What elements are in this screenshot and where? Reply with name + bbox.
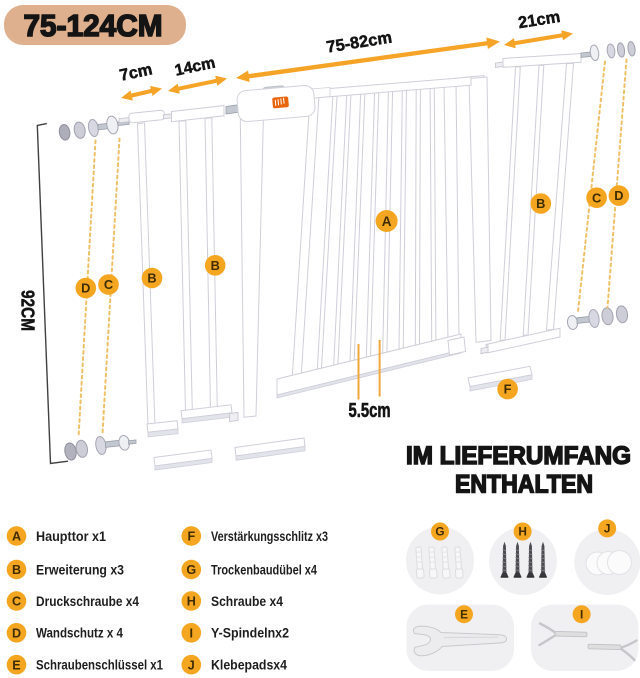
svg-text:A: A [382,214,392,229]
svg-text:ENTHALTEN: ENTHALTEN [455,471,593,499]
svg-text:Trockenbaudübel x4: Trockenbaudübel x4 [211,562,317,577]
svg-text:F: F [504,382,512,397]
svg-text:C: C [592,190,601,205]
svg-text:H: H [187,595,196,609]
svg-text:F: F [187,530,195,544]
svg-text:75-124CM: 75-124CM [24,8,163,43]
svg-text:Schraube x4: Schraube x4 [211,594,283,609]
svg-text:G: G [435,525,444,539]
svg-text:B: B [211,258,220,273]
svg-text:92CM: 92CM [18,290,39,331]
svg-text:Schraubenschlüssel x1: Schraubenschlüssel x1 [36,658,163,673]
svg-text:5.5cm: 5.5cm [349,400,391,422]
svg-text:Haupttor x1: Haupttor x1 [36,529,107,544]
svg-text:Erweiterung x3: Erweiterung x3 [36,562,124,577]
svg-text:J: J [188,658,195,672]
svg-text:C: C [12,595,21,609]
svg-text:J: J [604,522,611,536]
svg-text:Wandschutz x 4: Wandschutz x 4 [36,626,123,641]
svg-text:Klebepadsx4: Klebepadsx4 [211,658,287,673]
svg-text:IM LIEFERUMFANG: IM LIEFERUMFANG [406,442,631,470]
svg-text:H: H [518,525,527,539]
svg-text:B: B [147,271,156,286]
svg-text:G: G [186,563,196,577]
svg-text:Druckschraube x4: Druckschraube x4 [36,594,139,609]
svg-text:E: E [460,607,468,621]
svg-text:D: D [614,188,623,203]
svg-text:B: B [536,196,545,211]
svg-text:D: D [81,281,90,296]
svg-text:E: E [12,658,20,672]
svg-text:Verstärkungsschlitz x3: Verstärkungsschlitz x3 [211,529,328,544]
svg-text:C: C [104,277,113,292]
svg-text:A: A [12,530,21,544]
svg-text:Y-Spindelnx2: Y-Spindelnx2 [211,626,289,641]
svg-text:D: D [12,626,21,640]
svg-text:I: I [190,626,194,640]
svg-text:I: I [580,607,583,621]
svg-text:B: B [12,563,21,577]
